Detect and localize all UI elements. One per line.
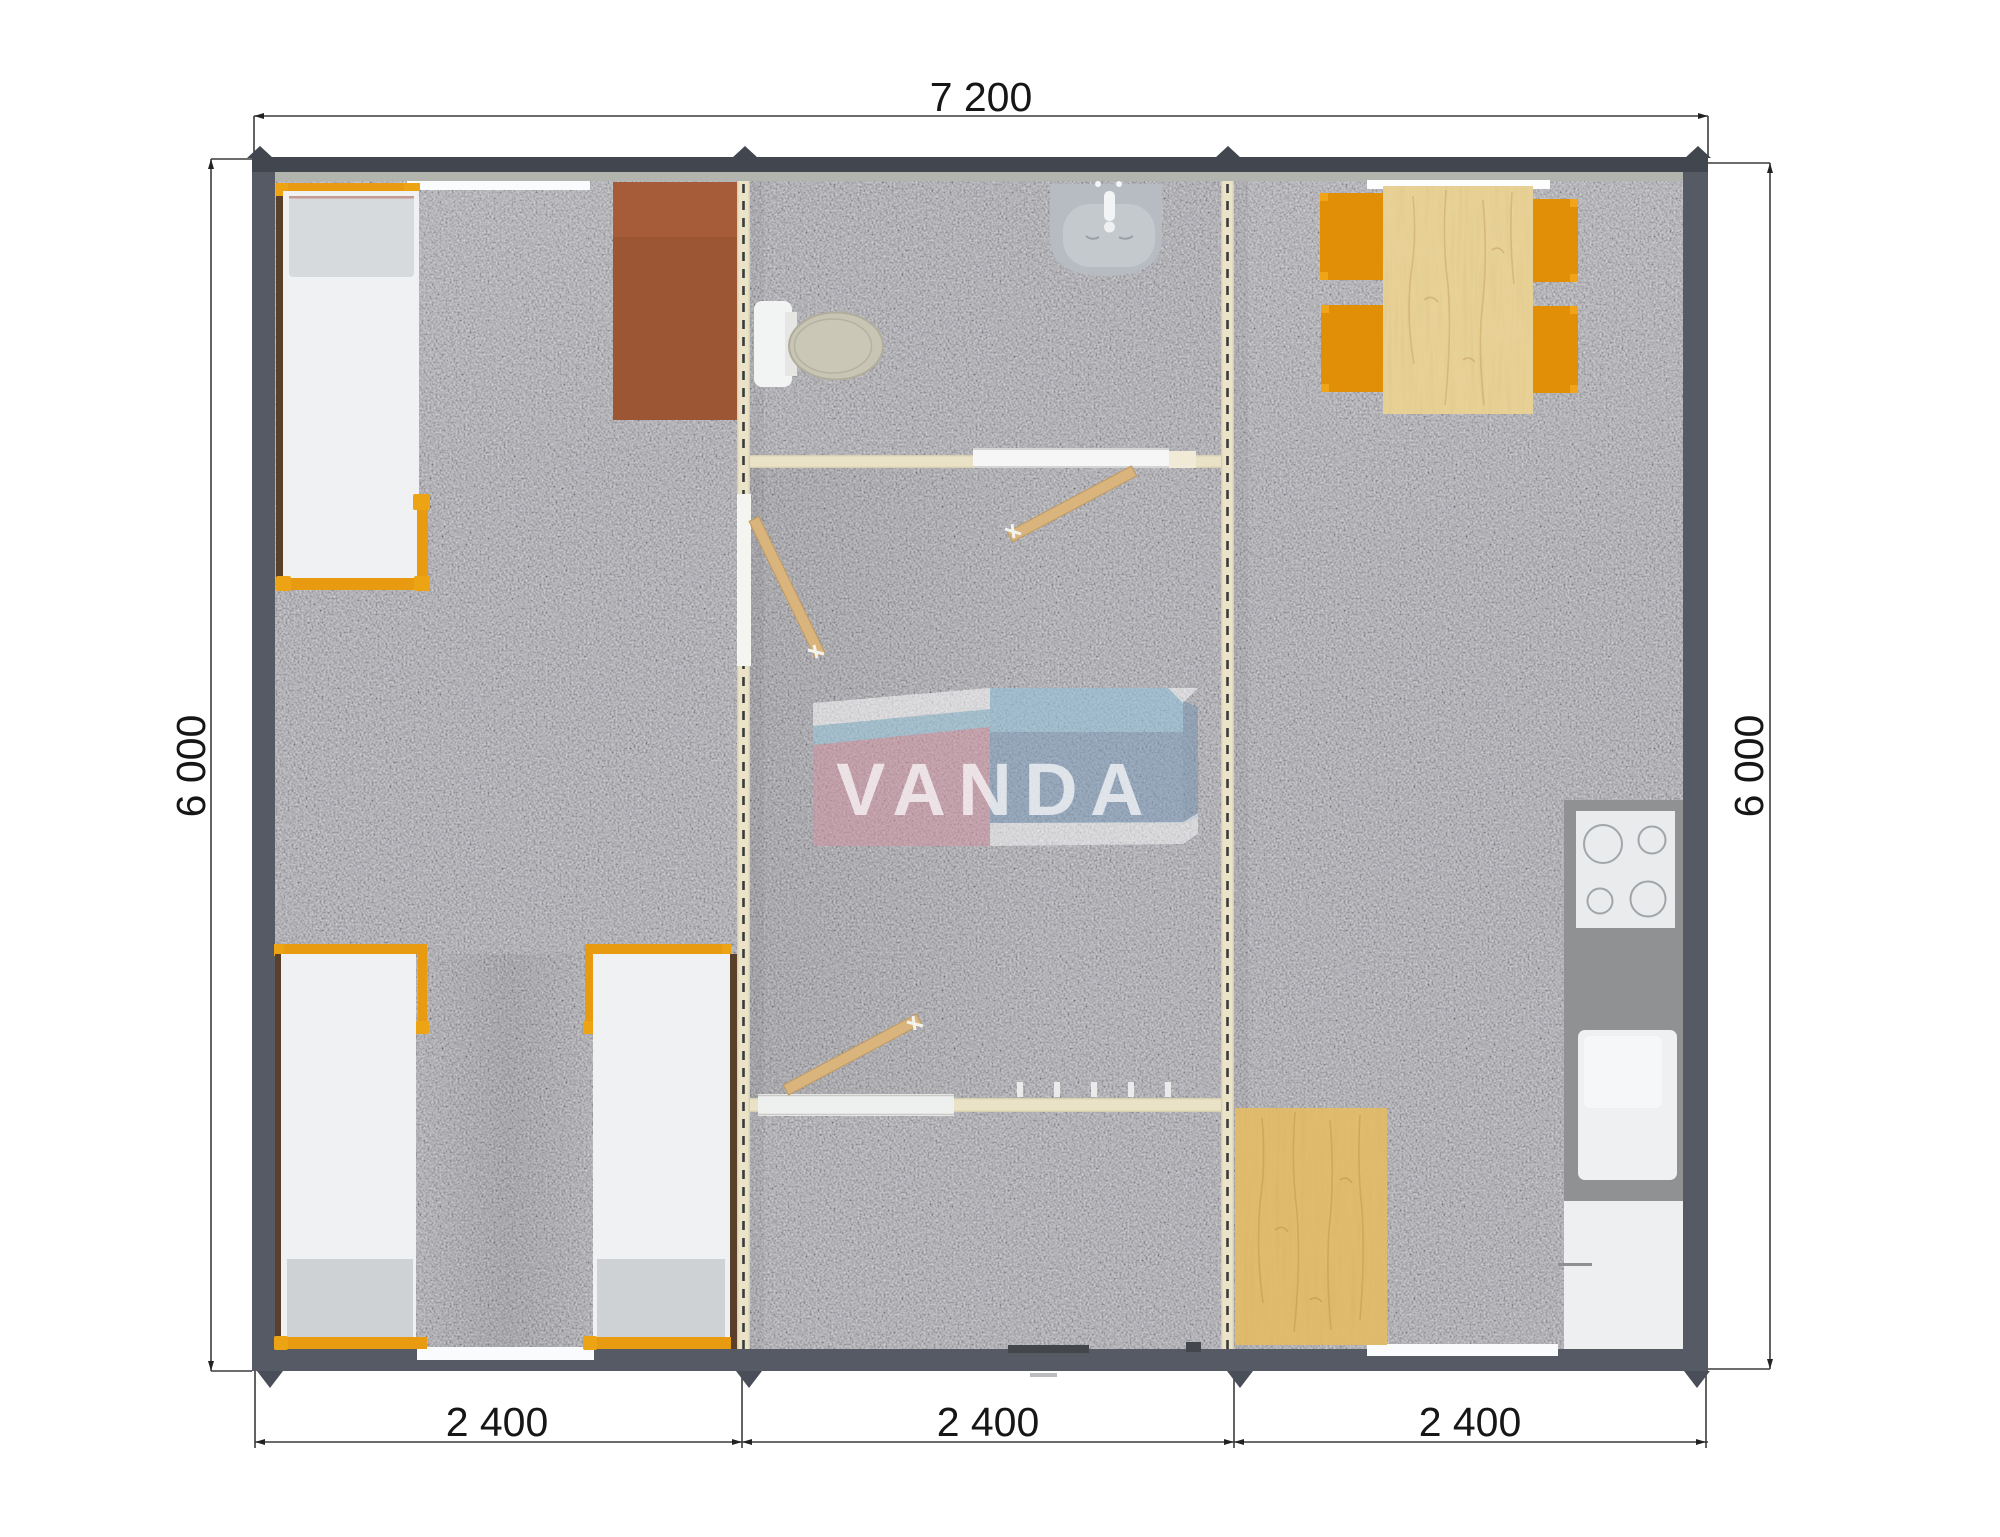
svg-text:2 400: 2 400	[1419, 1399, 1522, 1445]
svg-text:7 200: 7 200	[930, 74, 1033, 120]
svg-text:2 400: 2 400	[446, 1399, 549, 1445]
svg-text:6 000: 6 000	[168, 715, 214, 818]
svg-text:2 400: 2 400	[937, 1399, 1040, 1445]
svg-text:VANDA: VANDA	[836, 748, 1156, 831]
svg-text:6 000: 6 000	[1726, 715, 1772, 818]
